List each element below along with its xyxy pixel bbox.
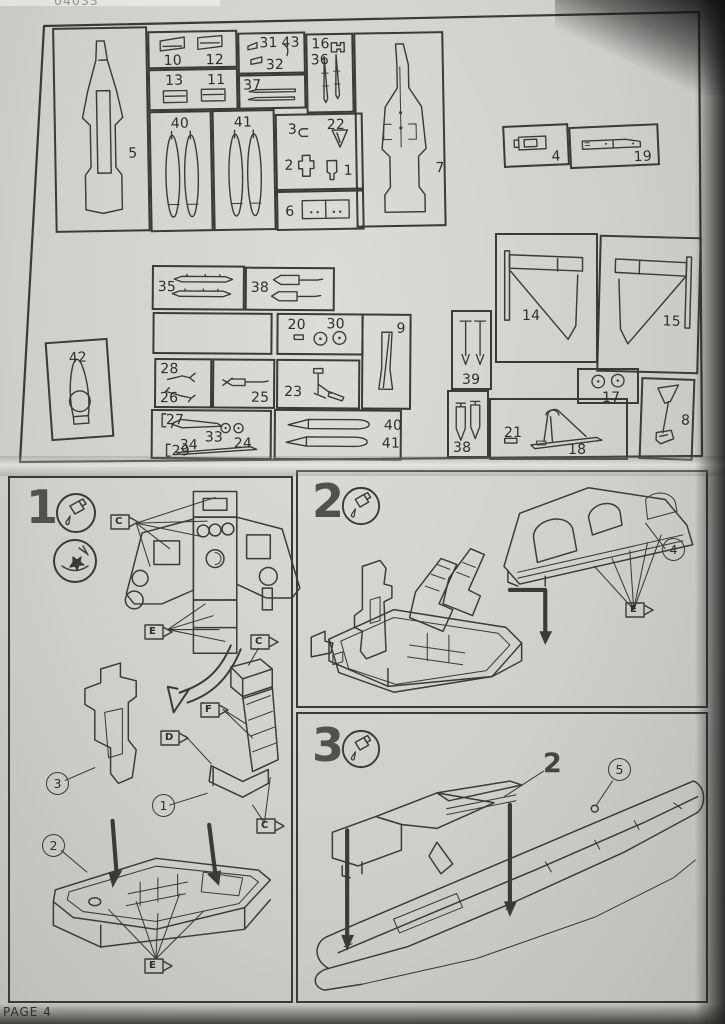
part-number-28: 28 (160, 362, 178, 378)
step-1-panel: 1 (8, 476, 293, 1003)
part-number-4: 4 (551, 149, 561, 165)
part-number-25: 25 (251, 391, 269, 407)
part-number-7: 7 (435, 161, 444, 177)
part-number-26: 26 (160, 391, 178, 407)
part-14-sketch (497, 235, 596, 361)
parts-box-5: 5 (52, 26, 151, 233)
callout-part-3: 3 (46, 772, 69, 795)
part-number-10: 10 (164, 54, 182, 70)
parts-box-17: 17 (577, 368, 639, 404)
parts-box-9: 9 (361, 313, 412, 409)
part-number-17: 17 (602, 391, 620, 406)
flag-c-top: C (110, 514, 140, 530)
parts-box-15: 15 (596, 235, 702, 375)
flag-letter: E (630, 604, 637, 616)
step-1-drawing (10, 478, 291, 1001)
part-number-20: 20 (288, 318, 306, 334)
part-number-18: 18 (568, 443, 586, 458)
step-3-panel: 3 (296, 712, 708, 1003)
part-number-16: 16 (311, 37, 329, 53)
part-number-1: 1 (344, 164, 353, 180)
part-number-36: 36 (311, 53, 329, 69)
flag-d: D (160, 730, 190, 746)
flag-letter: C (255, 636, 262, 648)
part-number-23: 23 (284, 385, 302, 401)
parts-box-14: 14 (495, 233, 598, 363)
instruction-page: 04033 5 10 12 13 11 (0, 0, 725, 1024)
parts-box-23: 23 (276, 359, 360, 410)
parts-box-37: 37 (238, 74, 307, 110)
flag-e-step2: E (625, 602, 655, 618)
parts-box-8: 8 (639, 377, 696, 461)
assembly-label-2: 2 (543, 750, 562, 777)
parts-box-40-41-horizontal: 40 41 (274, 409, 402, 461)
part-number-9: 9 (396, 322, 405, 337)
part-number-38r: 38 (453, 441, 471, 456)
flag-letter: E (149, 960, 156, 972)
part-number-41: 41 (234, 115, 252, 131)
part-number-35: 35 (158, 280, 176, 296)
part-number-40: 40 (171, 117, 189, 133)
flag-letter: C (115, 516, 122, 528)
parts-box-13-11: 13 11 (148, 68, 239, 112)
sprue-cluster-main: 5 10 12 13 11 31 43 (48, 15, 454, 238)
parts-box-28-26: 28 26 (154, 358, 212, 408)
parts-box-19: 19 (568, 123, 660, 169)
part-number-29: 29 (172, 444, 190, 460)
part-15-sketch (598, 237, 699, 373)
part-number-40h: 40 (384, 419, 402, 435)
part-number-33: 33 (205, 430, 223, 446)
part-number-2: 2 (284, 159, 293, 175)
step-2-panel: 2 (296, 470, 708, 708)
flag-letter: F (205, 704, 212, 716)
part-number-22: 22 (327, 118, 345, 134)
parts-box-35: 35 (152, 265, 245, 311)
page-label: PAGE 4 (3, 1005, 52, 1019)
part-number-8: 8 (681, 413, 691, 429)
part-number-19: 19 (633, 150, 652, 166)
parts-box-21-18: 21 18 (489, 398, 628, 460)
callout-part-4: 4 (662, 538, 685, 561)
part-number-37: 37 (243, 78, 261, 94)
parts-box-38-right: 38 (447, 390, 489, 458)
part-number-12: 12 (206, 53, 224, 69)
part-number-6: 6 (285, 205, 294, 221)
step-2-drawing (298, 472, 706, 706)
part-number-5: 5 (128, 146, 137, 162)
parts-box-10-12: 10 12 (147, 30, 238, 70)
flag-letter: D (165, 732, 173, 744)
sprue-cluster-middle: 35 38 20 30 9 (149, 262, 412, 461)
parts-box-31-43-32: 31 43 32 (237, 32, 306, 75)
part-5-sketch (54, 28, 148, 231)
parts-box-6: 6 (276, 190, 365, 232)
parts-box-42: 42 (45, 338, 115, 441)
parts-box-39: 39 (451, 310, 492, 390)
flag-c-seat-bottom: C (256, 818, 286, 834)
flag-c-seat-top: C (250, 634, 280, 650)
callout-part-1: 1 (152, 794, 175, 817)
part-number-30: 30 (327, 317, 345, 333)
part-number-27: 27 (166, 413, 184, 429)
part-number-43: 43 (281, 36, 299, 52)
part-number-21: 21 (504, 426, 522, 441)
part-number-3: 3 (288, 123, 297, 139)
flag-letter: E (149, 626, 156, 638)
step-3-drawing (298, 714, 706, 1001)
flag-e-tub: E (144, 958, 174, 974)
flag-f: F (200, 702, 230, 718)
part-7-sketch (355, 33, 444, 225)
parts-box-40-vertical: 40 (149, 110, 214, 232)
part-number-39: 39 (462, 373, 480, 388)
parts-box-41-vertical: 41 (212, 109, 277, 231)
part-number-13: 13 (165, 74, 183, 90)
parts-box-7: 7 (353, 31, 446, 228)
parts-box-4: 4 (502, 123, 570, 168)
part-number-14: 14 (522, 309, 540, 324)
part-number-42: 42 (68, 350, 87, 367)
part-number-31: 31 (259, 36, 277, 52)
parts-box-20-30: 20 30 (276, 313, 363, 356)
part-number-32: 32 (266, 58, 284, 74)
parts-box-16-36: 16 36 (305, 33, 354, 114)
part-number-38m: 38 (251, 281, 269, 297)
flag-e-mid: E (144, 624, 174, 640)
parts-box-38-middle: 38 (245, 267, 335, 312)
parts-box-25: 25 (212, 358, 275, 408)
parts-box-3-22-2-1: 3 22 2 1 (275, 113, 364, 192)
part-number-11: 11 (207, 73, 225, 89)
part-number-15: 15 (662, 314, 681, 330)
callout-part-5: 5 (608, 758, 631, 781)
callout-part-2: 2 (42, 834, 65, 857)
flag-letter: C (261, 820, 268, 832)
part-number-41h: 41 (382, 437, 400, 453)
part-number-24: 24 (234, 437, 252, 453)
parts-box-empty (152, 312, 272, 355)
parts-box-27-34-33-24-29: 27 33 34 24 29 (151, 409, 272, 460)
sprue-cluster-right: 4 19 (502, 115, 660, 174)
